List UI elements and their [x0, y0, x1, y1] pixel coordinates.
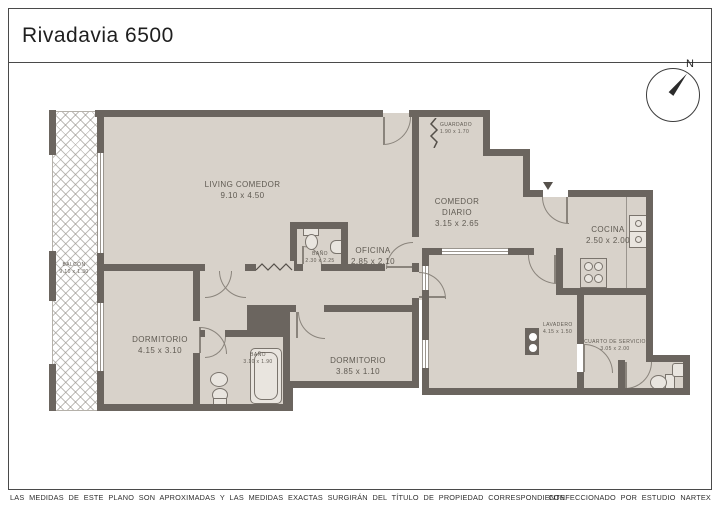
room-dims: 3.85 x 1.10 — [313, 367, 403, 378]
room-label-dormitorio-1: DORMITORIO 4.15 x 3.10 — [115, 335, 205, 357]
wall — [290, 222, 348, 229]
room-dims: 3.15 x 2.65 — [420, 219, 494, 230]
wall-bottom — [97, 404, 293, 411]
burners-icon — [580, 258, 607, 288]
wall — [422, 290, 429, 340]
wall — [97, 253, 104, 303]
room-name: COMEDOR DIARIO — [420, 197, 494, 219]
wall-break-icon — [256, 261, 294, 274]
wall — [324, 305, 419, 312]
room-label-living: LIVING COMEDOR 9.10 x 4.50 — [180, 180, 305, 202]
room-label-guardado: GUARDADO 1.90 x 1.70 — [440, 122, 490, 136]
room-dims: 3.10 x 1.90 — [234, 359, 282, 366]
wall — [49, 251, 56, 301]
room-dims: 2.85 x 2.10 — [340, 257, 406, 268]
wall-top — [95, 110, 383, 117]
room-label-balcon: BALCÓN 9.10 x 1.30 — [52, 262, 96, 276]
wall — [577, 372, 584, 388]
bedroom2-door-leaf — [296, 312, 298, 338]
footer-disclaimer: LAS MEDIDAS DE ESTE PLANO SON APROXIMADA… — [10, 493, 567, 502]
room-label-bano-1: BAÑO 2.30 x 2.25 — [300, 251, 340, 265]
wall — [102, 264, 205, 271]
wall-bath-divider — [618, 360, 625, 395]
entry-arrow-icon — [543, 182, 553, 190]
wall — [193, 353, 200, 411]
room-name: BAÑO — [234, 352, 282, 359]
wall — [422, 368, 429, 395]
wall — [422, 248, 442, 255]
room-label-lavadero: LAVADERO 4.15 x 1.50 — [543, 322, 593, 336]
wall — [412, 110, 419, 237]
room-name: LIVING COMEDOR — [180, 180, 305, 191]
washer-icon — [525, 328, 539, 355]
closet-zigzag-icon — [428, 118, 440, 153]
room-name: CUARTO DE SERVICIO — [580, 339, 650, 346]
wall — [508, 248, 534, 255]
wall — [568, 190, 653, 197]
toilet-icon — [305, 234, 318, 250]
window — [97, 303, 104, 371]
wall-bottom — [286, 381, 419, 388]
room-name: GUARDADO — [440, 122, 490, 129]
wall — [283, 305, 296, 312]
room-name: BALCÓN — [52, 262, 96, 269]
wall — [646, 190, 653, 362]
title-divider — [8, 62, 712, 63]
room-label-comedor-diario: COMEDOR DIARIO 3.15 x 2.65 — [420, 197, 494, 229]
page-title: Rivadavia 6500 — [22, 24, 174, 48]
room-label-dormitorio-2: DORMITORIO 3.85 x 1.10 — [313, 356, 403, 378]
window — [97, 153, 104, 253]
north-label: N — [686, 58, 694, 70]
room-label-bano-2: BAÑO 3.10 x 1.90 — [234, 352, 282, 366]
window — [422, 340, 429, 368]
room-name: LAVADERO — [543, 322, 593, 329]
room-name: COCINA — [571, 225, 645, 236]
wall-kitchen-south — [556, 288, 653, 295]
room-dims: 2.50 x 2.00 — [571, 236, 645, 247]
wall — [49, 364, 56, 411]
room-dims: 9.10 x 1.30 — [52, 269, 96, 276]
room-dims: 4.15 x 3.10 — [115, 346, 205, 357]
room-name: OFICINA — [340, 246, 406, 257]
service-bath-door-leaf — [625, 362, 627, 388]
room-dims: 1.90 x 1.70 — [440, 129, 490, 136]
room-dims: 4.15 x 1.50 — [543, 329, 593, 336]
room-dims: 3.05 x 2.00 — [580, 346, 650, 353]
kitchen-door-leaf — [566, 197, 568, 223]
floor-plan-sheet: Rivadavia 6500 N — [0, 0, 720, 509]
window — [442, 248, 508, 255]
room-label-cocina: COCINA 2.50 x 2.00 — [571, 225, 645, 247]
entry-door-leaf — [383, 117, 385, 144]
room-label-oficina: OFICINA 2.85 x 2.10 — [340, 246, 406, 268]
wall — [412, 263, 419, 272]
footer-credit: CONFECCIONADO POR ESTUDIO NARTEX — [548, 493, 711, 502]
sink-icon — [210, 372, 228, 387]
balcony-hatch — [52, 111, 99, 411]
wall — [523, 190, 543, 197]
wall — [49, 110, 56, 155]
room-name: DORMITORIO — [313, 356, 403, 367]
wall-bottom — [425, 388, 690, 395]
room-label-cuarto-servicio: CUARTO DE SERVICIO 3.05 x 2.00 — [580, 339, 650, 353]
wall-top — [409, 110, 490, 117]
wall — [193, 271, 200, 321]
room-dims: 2.30 x 2.25 — [300, 258, 340, 265]
room-name: BAÑO — [300, 251, 340, 258]
room-dims: 9.10 x 4.50 — [180, 191, 305, 202]
room-name: DORMITORIO — [115, 335, 205, 346]
